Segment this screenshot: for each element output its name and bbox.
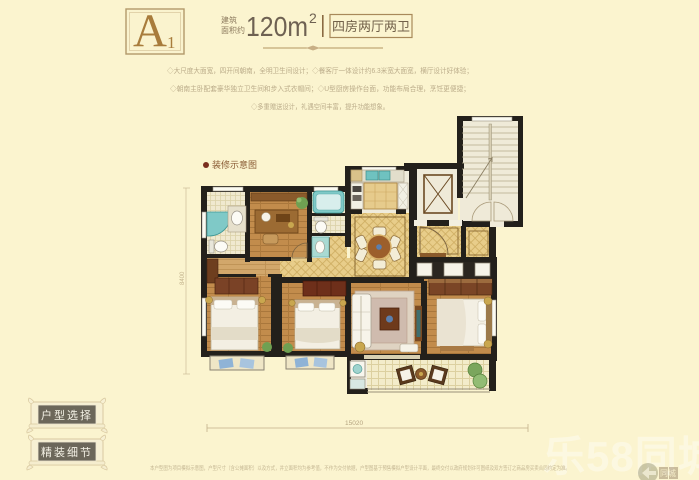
svg-text:120m: 120m bbox=[246, 11, 308, 42]
svg-text:建筑: 建筑 bbox=[221, 15, 237, 25]
svg-text:◇大尺度大面宽，四开间朝南，全明卫生间设计；◇餐客厅一体设计: ◇大尺度大面宽，四开间朝南，全明卫生间设计；◇餐客厅一体设计约6.3米宽大面宽，… bbox=[167, 66, 473, 75]
svg-text:四房两厅两卫: 四房两厅两卫 bbox=[332, 19, 410, 34]
svg-text:A: A bbox=[133, 5, 167, 57]
svg-text:面积约: 面积约 bbox=[221, 25, 245, 35]
svg-text:1: 1 bbox=[167, 33, 176, 52]
svg-text:15020: 15020 bbox=[345, 420, 363, 427]
svg-text:◇朝南主卧配套豪华独立卫生间和步入式衣帽间；◇U型厨房操作台: ◇朝南主卧配套豪华独立卫生间和步入式衣帽间；◇U型厨房操作台面，功能布局合理，烹… bbox=[170, 84, 470, 93]
svg-text:同城: 同城 bbox=[660, 469, 676, 478]
svg-text:8400: 8400 bbox=[180, 271, 186, 285]
svg-text:本户型图为项目模拟示意图，户型尺寸（含公摊面积）以及方式，并: 本户型图为项目模拟示意图，户型尺寸（含公摊面积）以及方式，并立面积均为参考值，不… bbox=[150, 464, 570, 472]
svg-text:2: 2 bbox=[309, 10, 317, 26]
svg-text:◇多重赠送设计，礼遇空间丰富，提升功能想象。: ◇多重赠送设计，礼遇空间丰富，提升功能想象。 bbox=[251, 102, 389, 111]
svg-text:精装细节: 精装细节 bbox=[41, 446, 93, 459]
svg-text:户型选择: 户型选择 bbox=[41, 408, 93, 422]
svg-text:装修示意图: 装修示意图 bbox=[212, 159, 257, 170]
